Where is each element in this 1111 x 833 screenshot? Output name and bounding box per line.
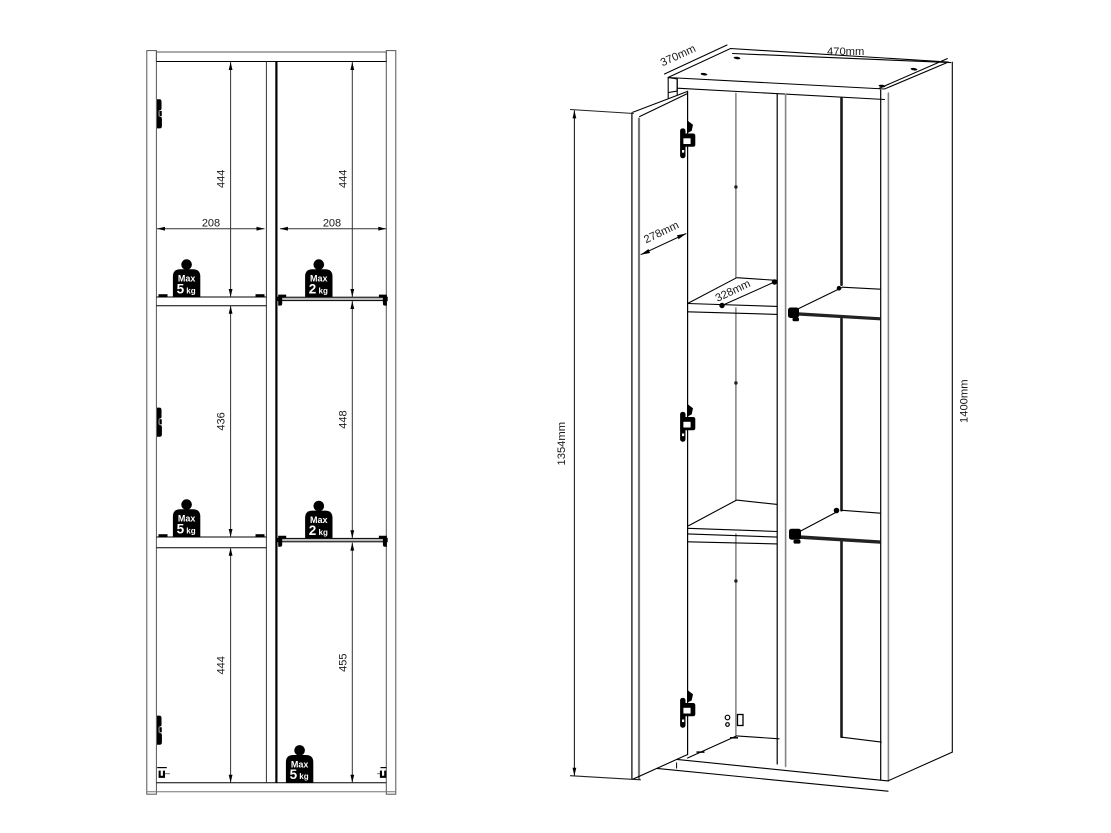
svg-text:470mm: 470mm xyxy=(827,46,864,58)
svg-text:1354mm: 1354mm xyxy=(556,422,568,466)
svg-text:1400mm: 1400mm xyxy=(959,379,971,423)
svg-text:208: 208 xyxy=(202,218,220,230)
svg-text:455: 455 xyxy=(337,654,349,672)
svg-text:448: 448 xyxy=(337,410,349,428)
svg-text:208: 208 xyxy=(323,218,341,230)
svg-text:444: 444 xyxy=(337,170,349,188)
svg-text:444: 444 xyxy=(216,170,228,188)
svg-text:444: 444 xyxy=(216,656,228,674)
svg-text:436: 436 xyxy=(216,412,228,430)
